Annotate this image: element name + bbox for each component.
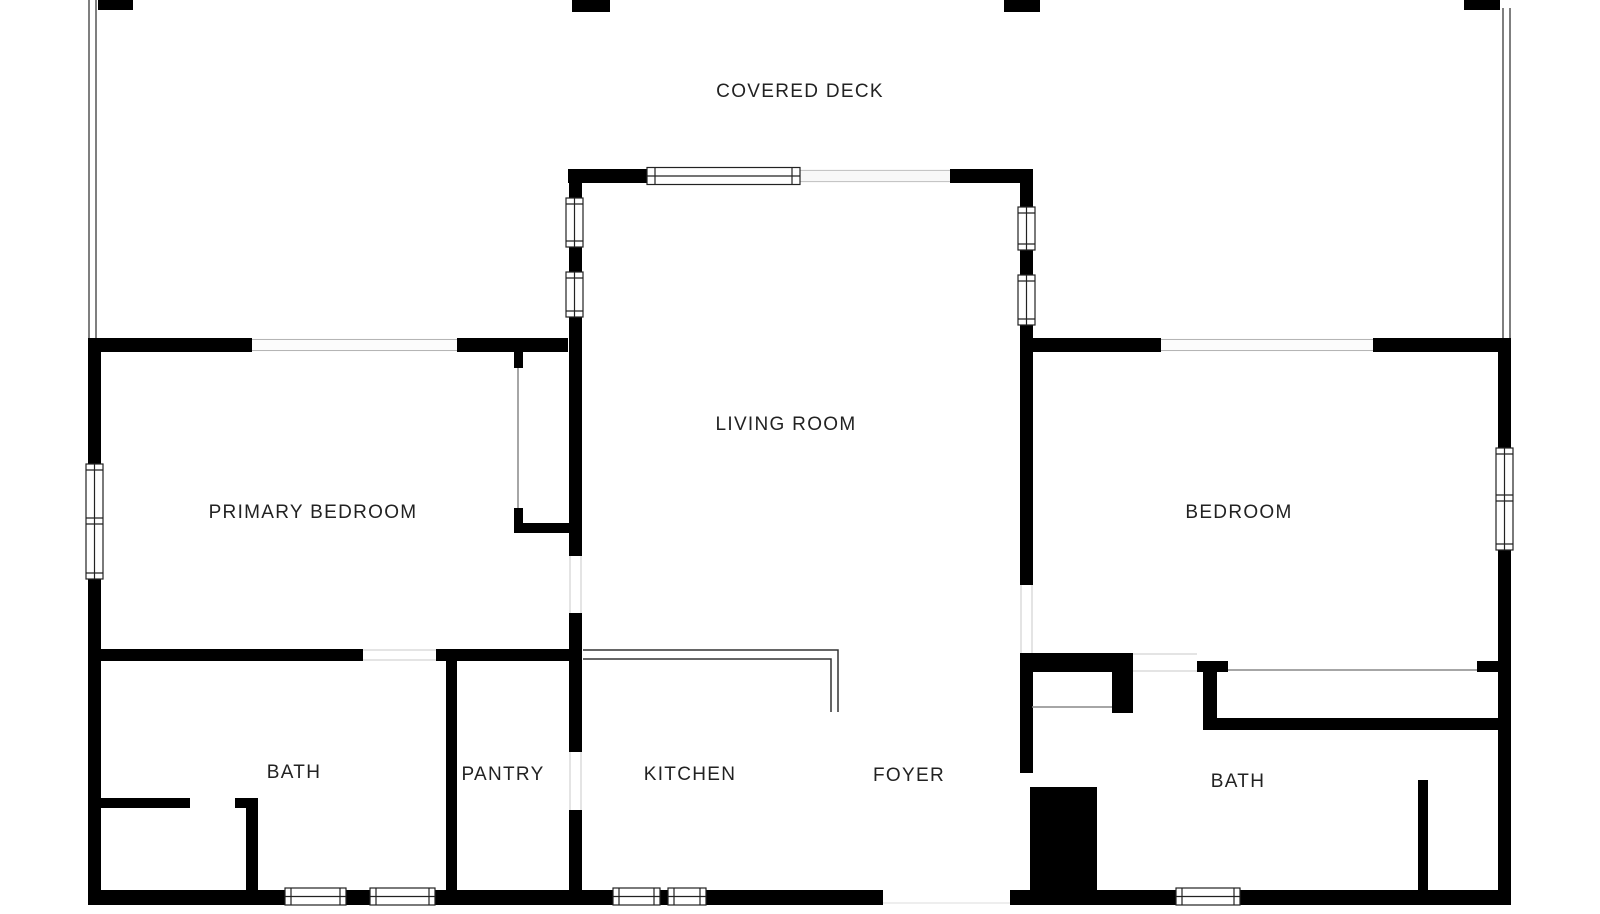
glazed-openings [252, 169, 1373, 352]
room-label-foyer: FOYER [873, 765, 945, 787]
room-label-pantry: PANTRY [461, 764, 544, 786]
floor-plan-drawing [0, 0, 1600, 914]
deck-post [1464, 0, 1500, 10]
window [86, 464, 103, 579]
deck-post [98, 0, 133, 10]
window [1176, 888, 1240, 905]
closet-door-lines [518, 368, 1477, 707]
window [1018, 207, 1035, 250]
kitchen-counter [583, 650, 838, 712]
window [566, 272, 583, 317]
window [613, 888, 660, 905]
room-label-kitchen: KITCHEN [644, 764, 737, 786]
deck-posts [98, 0, 1500, 12]
room-label-bath-right: BATH [1211, 771, 1265, 793]
room-label-primary-bedroom: PRIMARY BEDROOM [209, 502, 418, 524]
room-label-bedroom: BEDROOM [1185, 502, 1292, 524]
room-label-bath-left: BATH [267, 762, 321, 784]
window [647, 168, 800, 185]
window [285, 888, 346, 905]
windows [86, 168, 1513, 906]
room-label-covered-deck: COVERED DECK [716, 81, 884, 103]
exterior-walls [88, 169, 1511, 905]
window [668, 888, 706, 905]
deck-post [572, 0, 610, 12]
deck-post [1004, 0, 1040, 12]
window [566, 198, 583, 247]
window [1018, 275, 1035, 325]
room-label-living-room: LIVING ROOM [716, 414, 857, 436]
solid-block [1030, 787, 1097, 890]
floor-plan: COVERED DECK LIVING ROOM PRIMARY BEDROOM… [0, 0, 1600, 914]
window [370, 888, 435, 905]
window [1496, 448, 1513, 550]
